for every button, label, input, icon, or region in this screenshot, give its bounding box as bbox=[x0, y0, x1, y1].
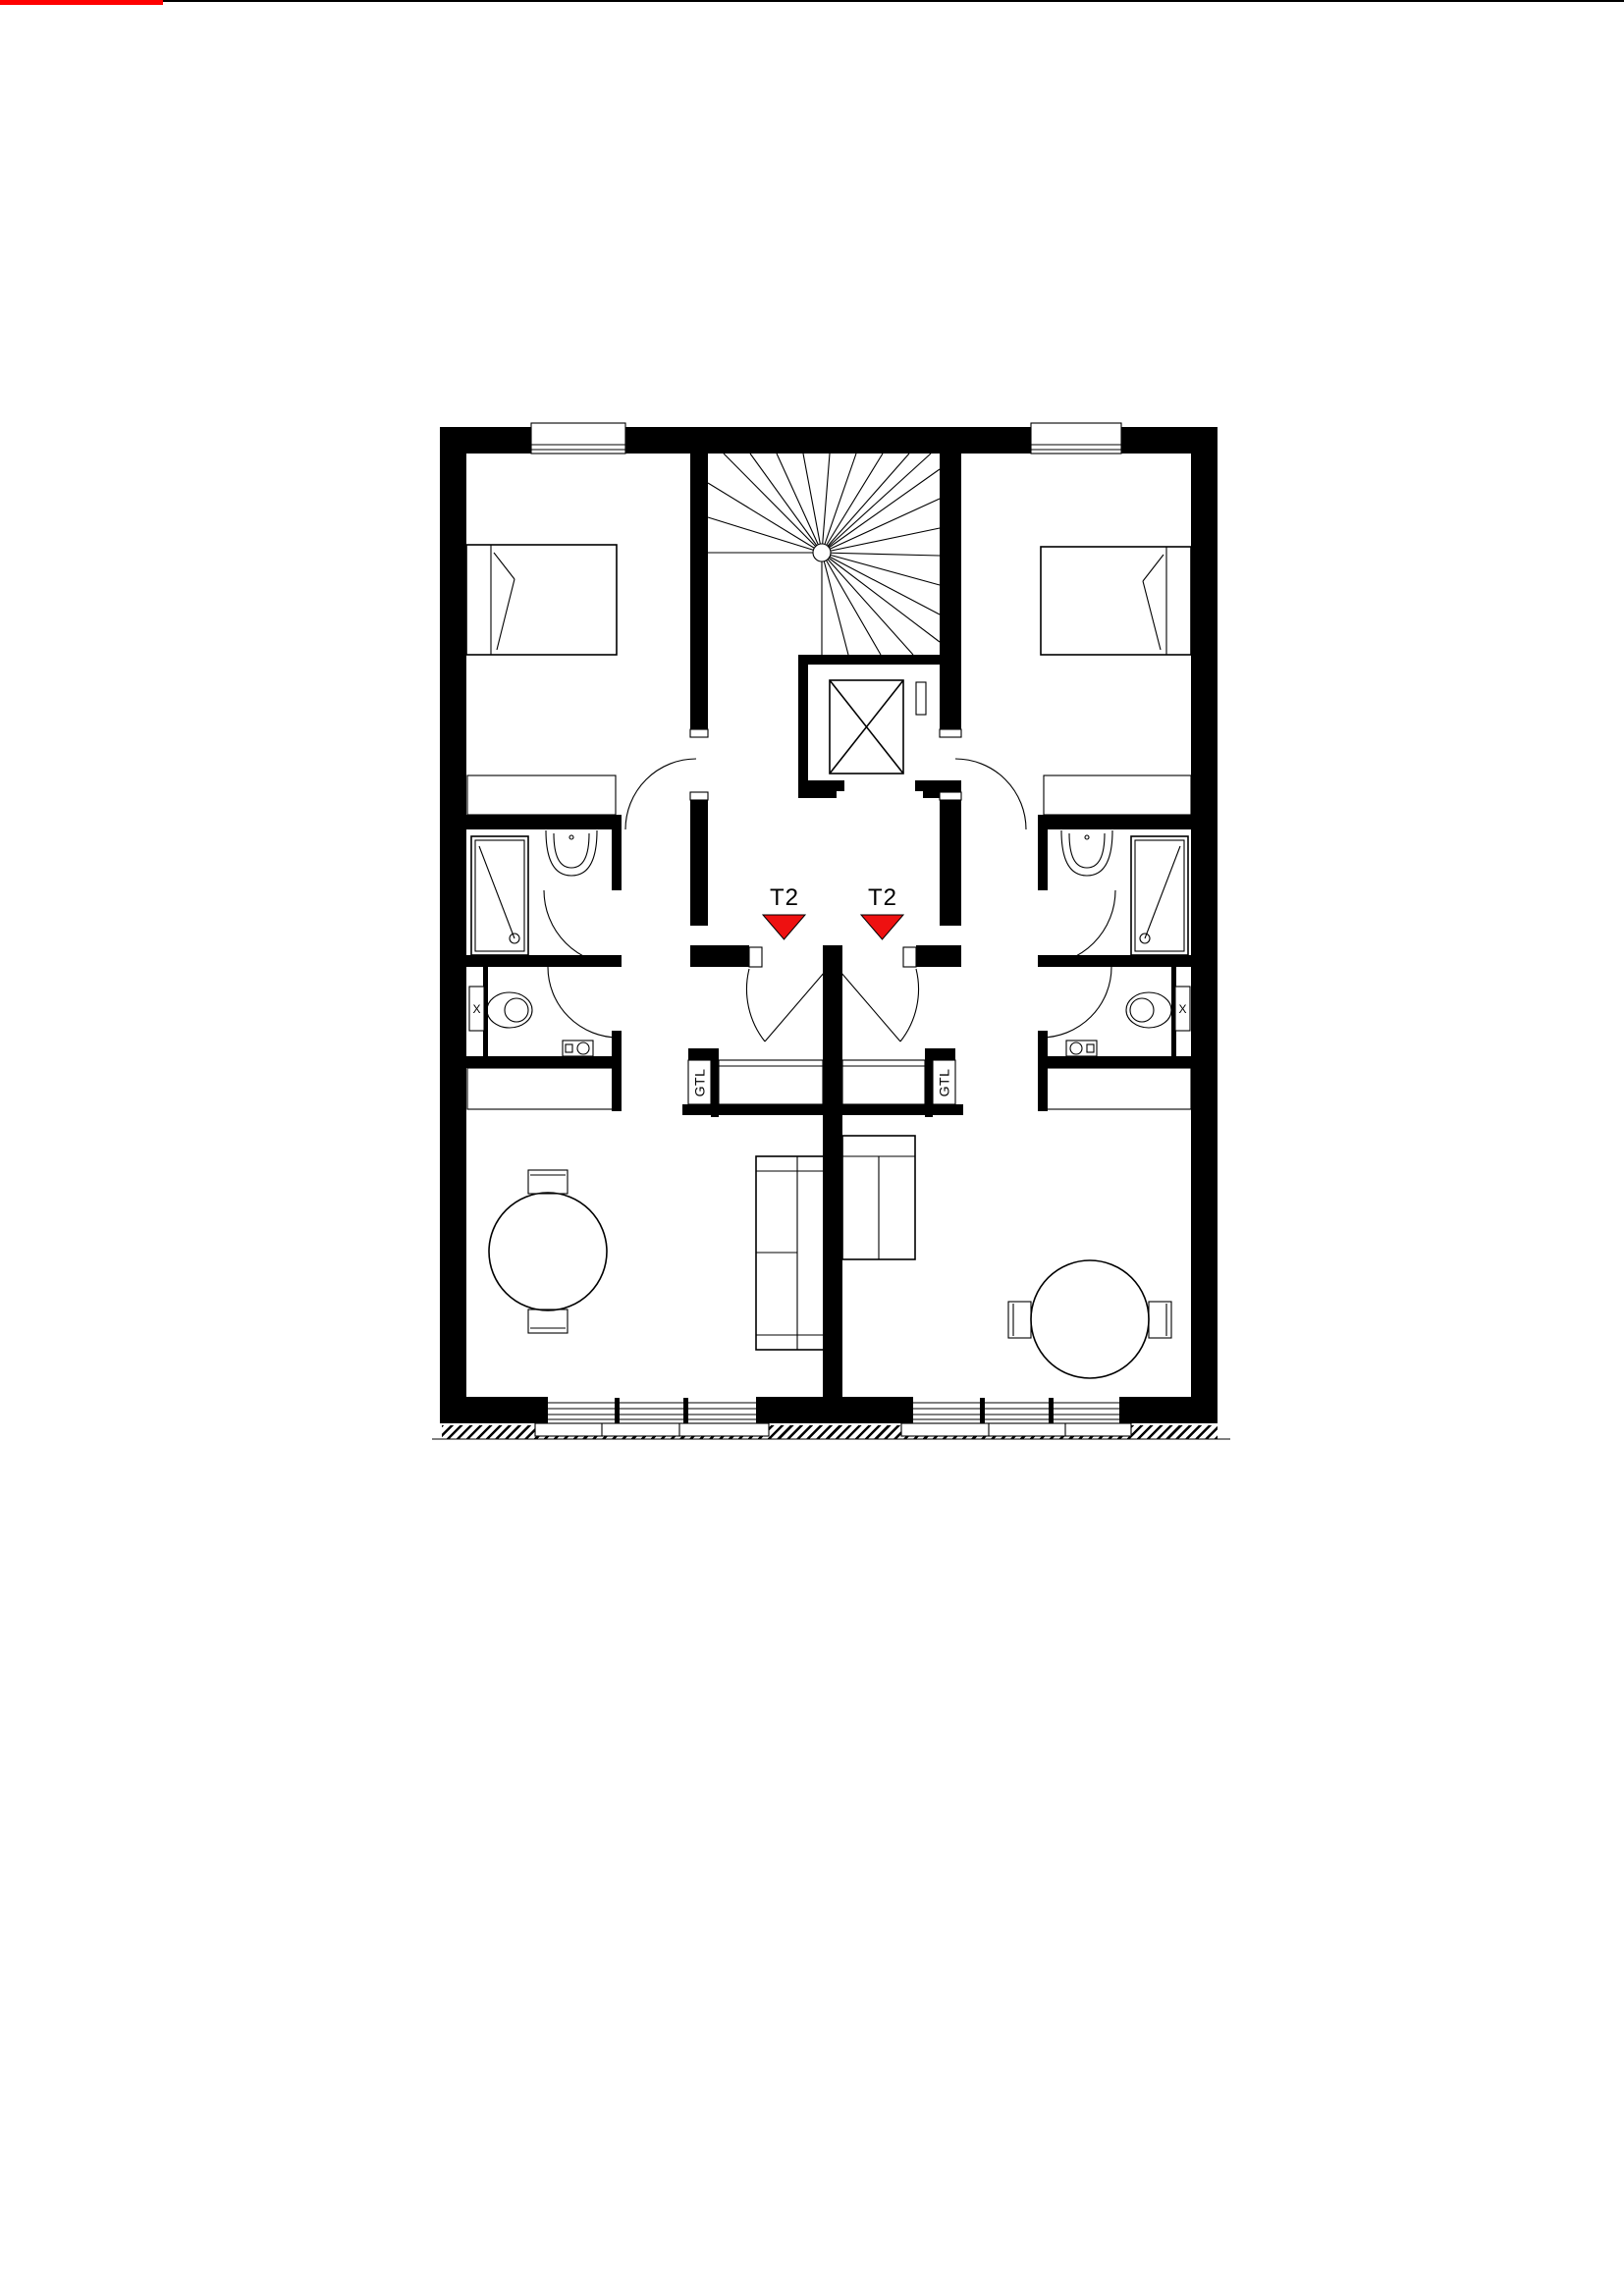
sink-icon bbox=[1061, 830, 1112, 876]
spiral-stair bbox=[708, 454, 940, 655]
windows bbox=[432, 423, 1230, 1439]
closet-bedroom bbox=[467, 775, 616, 815]
door-arc-left-bath bbox=[544, 890, 619, 965]
unit-triangle-right bbox=[861, 915, 903, 939]
entry-counter bbox=[719, 1060, 823, 1104]
red-accent-line bbox=[0, 0, 163, 5]
shelf-unit-icon bbox=[842, 1136, 915, 1259]
interior-walls bbox=[461, 454, 1196, 1399]
doors bbox=[544, 729, 1115, 1041]
elevator-cab-icon bbox=[830, 680, 926, 774]
door-arc-right-wc bbox=[1041, 967, 1111, 1038]
entry-counter bbox=[842, 1060, 925, 1104]
shower-icon bbox=[471, 836, 528, 955]
stair-newel bbox=[813, 544, 831, 561]
page-top-border bbox=[0, 0, 1624, 2]
door-arc-right-bedroom bbox=[955, 759, 1026, 829]
toilet-icon bbox=[487, 992, 532, 1028]
shower-icon bbox=[1131, 836, 1188, 955]
washer-icon bbox=[563, 1041, 593, 1056]
ground-hatch bbox=[442, 1425, 1218, 1439]
unit-label-right: T2 bbox=[861, 884, 904, 912]
closet-hall bbox=[1044, 1068, 1191, 1109]
outer-walls bbox=[440, 427, 1218, 1423]
closet-bedroom bbox=[1044, 775, 1191, 815]
gtl-label-left: GTL bbox=[688, 1060, 711, 1104]
gtl-label-text: GTL bbox=[692, 1068, 708, 1096]
door-arc-left-wc bbox=[548, 967, 619, 1038]
floor-plan-drawing bbox=[0, 0, 1624, 2296]
toilet-icon bbox=[1126, 992, 1171, 1028]
unit-label-left: T2 bbox=[763, 884, 806, 912]
dining-table-icon bbox=[1008, 1260, 1171, 1378]
gtl-label-text: GTL bbox=[937, 1068, 952, 1096]
elevator bbox=[798, 655, 961, 798]
sofa-icon bbox=[756, 1156, 825, 1350]
document-page: T2 T2 GTL GTL X X bbox=[0, 0, 1624, 2296]
window-marker-right: X bbox=[1175, 987, 1190, 1031]
door-arc-right-bath bbox=[1041, 890, 1115, 965]
unit-markers bbox=[763, 915, 903, 939]
gtl-label-right: GTL bbox=[933, 1060, 955, 1104]
window-marker-left: X bbox=[469, 987, 484, 1031]
sink-icon bbox=[546, 830, 597, 876]
closet-hall bbox=[467, 1068, 616, 1109]
washer-icon bbox=[1066, 1041, 1097, 1056]
door-arc-left-bedroom bbox=[625, 759, 696, 829]
unit-triangle-left bbox=[763, 915, 805, 939]
dining-table-icon bbox=[489, 1170, 607, 1333]
bed-icon bbox=[466, 545, 617, 655]
left-apartment-furniture bbox=[466, 545, 825, 1350]
right-apartment-furniture bbox=[842, 547, 1191, 1378]
bed-icon bbox=[1041, 547, 1191, 655]
